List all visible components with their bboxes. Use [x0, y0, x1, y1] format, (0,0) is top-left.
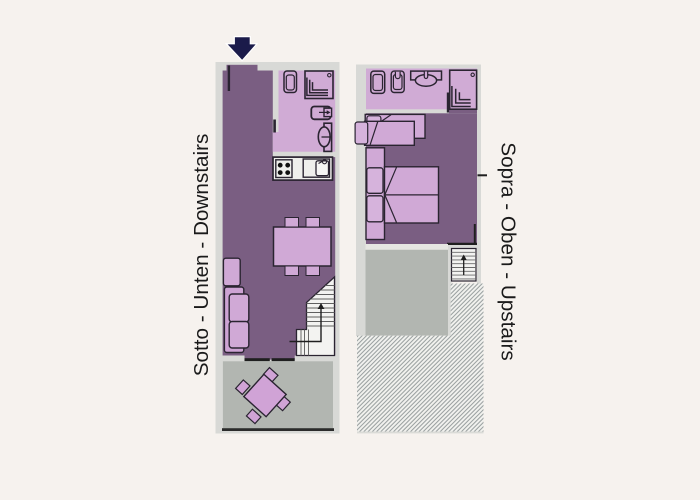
svg-text:Sopra - Oben - Upstairs: Sopra - Oben - Upstairs — [497, 142, 520, 360]
svg-text:Sotto - Unten - Downstairs: Sotto - Unten - Downstairs — [190, 134, 213, 377]
